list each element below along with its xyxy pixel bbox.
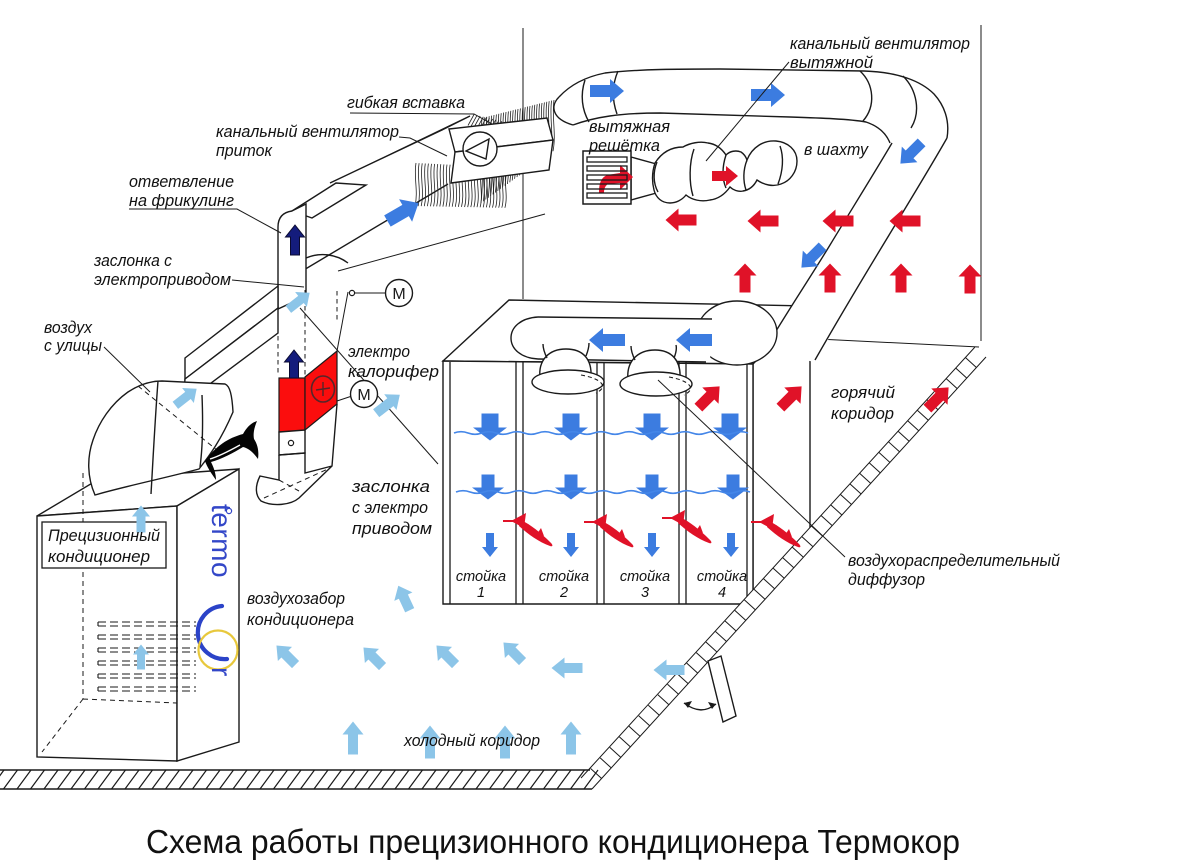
svg-text:M: M xyxy=(392,286,405,303)
svg-text:Прецизионный: Прецизионный xyxy=(48,527,160,545)
svg-text:кондиционера: кондиционера xyxy=(247,611,354,629)
svg-text:вытяжная: вытяжная xyxy=(589,118,670,136)
svg-text:холодный коридор: холодный коридор xyxy=(403,732,540,750)
svg-text:горячий: горячий xyxy=(831,384,895,402)
svg-text:кондиционер: кондиционер xyxy=(48,548,150,566)
svg-text:Схема работы прецизионного кон: Схема работы прецизионного кондиционера … xyxy=(146,823,960,860)
svg-text:канальный вентилятор: канальный вентилятор xyxy=(790,35,970,53)
svg-text:с улицы: с улицы xyxy=(44,337,102,355)
svg-text:termo: termo xyxy=(206,504,237,578)
svg-text:заслонка с: заслонка с xyxy=(93,252,173,270)
svg-text:воздух: воздух xyxy=(44,319,93,337)
svg-text:2: 2 xyxy=(559,585,568,601)
svg-text:ответвление: ответвление xyxy=(129,173,234,191)
svg-text:стойка: стойка xyxy=(620,569,670,585)
svg-text:4: 4 xyxy=(718,585,726,601)
svg-text:на фрикулинг: на фрикулинг xyxy=(129,192,234,210)
svg-text:стойка: стойка xyxy=(539,569,589,585)
svg-text:стойка: стойка xyxy=(456,569,506,585)
svg-text:с электро: с электро xyxy=(352,499,428,517)
svg-text:приток: приток xyxy=(216,142,273,160)
svg-text:M: M xyxy=(357,387,370,404)
svg-text:электро: электро xyxy=(348,343,410,361)
svg-text:3: 3 xyxy=(641,585,649,601)
svg-text:вытяжной: вытяжной xyxy=(790,54,873,72)
svg-text:стойка: стойка xyxy=(697,569,747,585)
svg-text:электроприводом: электроприводом xyxy=(94,271,231,289)
svg-text:r: r xyxy=(206,667,237,676)
svg-text:коридор: коридор xyxy=(831,405,894,423)
svg-text:калорифер: калорифер xyxy=(348,363,439,381)
svg-text:приводом: приводом xyxy=(352,520,432,538)
svg-text:решётка: решётка xyxy=(588,137,660,155)
svg-text:в шахту: в шахту xyxy=(804,141,870,159)
svg-text:воздухозабор: воздухозабор xyxy=(247,590,345,608)
svg-text:гибкая вставка: гибкая вставка xyxy=(347,94,465,112)
svg-text:диффузор: диффузор xyxy=(848,571,925,589)
svg-text:заслонка: заслонка xyxy=(351,478,430,496)
svg-text:воздухораспределительный: воздухораспределительный xyxy=(848,552,1060,570)
svg-text:канальный вентилятор: канальный вентилятор xyxy=(216,123,399,141)
svg-text:1: 1 xyxy=(477,585,485,601)
